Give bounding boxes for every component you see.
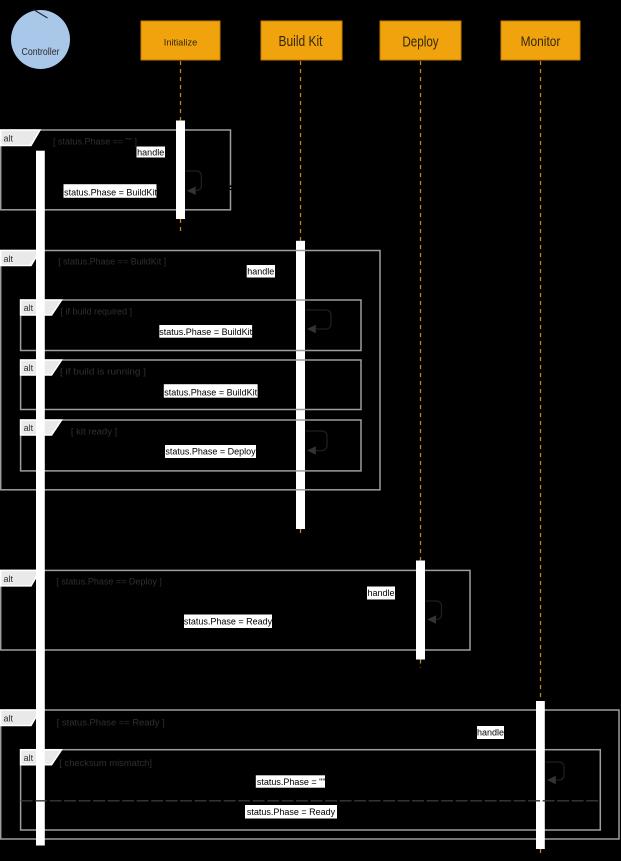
svg-text:handle: handle <box>247 267 274 277</box>
svg-text:[ checksum mismatch]: [ checksum mismatch] <box>59 758 152 768</box>
svg-text:Deploy: Deploy <box>402 34 439 51</box>
svg-text:Monitor: Monitor <box>521 33 561 49</box>
svg-text:status.Phase = BuildKit: status.Phase = BuildKit <box>164 388 257 398</box>
svg-text:alt: alt <box>24 363 34 373</box>
svg-text:[ status.Phase == Ready ]: [ status.Phase == Ready ] <box>57 718 165 728</box>
svg-text:[ if build is running ]: [ if build is running ] <box>60 366 146 376</box>
svg-text:status.Phase = BuildKit: status.Phase = BuildKit <box>64 187 157 197</box>
svg-text:handle: handle <box>477 728 504 738</box>
svg-text:alt: alt <box>24 303 34 313</box>
svg-text:status.Phase = Deploy: status.Phase = Deploy <box>165 447 256 457</box>
svg-text:alt: alt <box>4 574 14 584</box>
svg-text:Controller: Controller <box>22 47 61 58</box>
svg-text:alt: alt <box>4 713 14 723</box>
svg-text:handle: handle <box>367 588 394 598</box>
svg-text:alt: alt <box>24 423 34 433</box>
svg-text:alt: alt <box>24 753 34 763</box>
svg-text:[ status.Phase == "" ]: [ status.Phase == "" ] <box>53 136 137 146</box>
svg-text:status.Phase = BuildKit: status.Phase = BuildKit <box>159 327 252 337</box>
svg-text:[ status.Phase == BuildKit ]: [ status.Phase == BuildKit ] <box>58 257 166 267</box>
svg-text:alt: alt <box>4 133 14 143</box>
svg-text:[ status.Phase == Deploy ]: [ status.Phase == Deploy ] <box>56 577 162 587</box>
svg-text:status.Phase = Ready: status.Phase = Ready <box>247 807 336 817</box>
svg-text:[ kit ready ]: [ kit ready ] <box>71 426 117 436</box>
svg-text:alt: alt <box>4 254 14 264</box>
svg-text:Build Kit: Build Kit <box>279 33 324 50</box>
svg-text:status.Phase = Ready: status.Phase = Ready <box>184 616 273 626</box>
svg-text:[ if build required ]: [ if build required ] <box>61 306 133 316</box>
svg-text:status.Phase = "": status.Phase = "" <box>257 777 326 787</box>
svg-text:Initialize: Initialize <box>164 37 198 48</box>
svg-text:handle: handle <box>137 148 164 158</box>
